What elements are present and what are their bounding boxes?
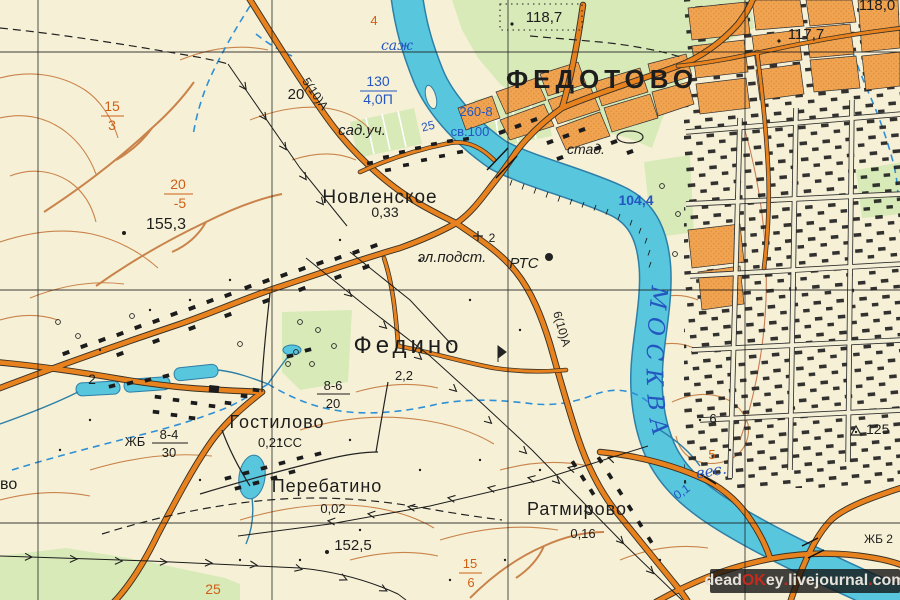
label-fedotovo: ФЕДОТОВО [506,64,698,94]
label-pop-fedino: 2,2 [395,368,413,383]
label-fedino: Федино [353,332,462,359]
label-f156-num: 15 [463,556,477,571]
label-n20: 20 [288,86,305,103]
label-n6: 6 [709,411,716,426]
label-f86-den: 20 [326,396,340,411]
elev-dot-1187 [510,22,513,25]
label-km2: 2 [88,371,96,387]
label-elev-1525: 152,5 [334,537,372,554]
label-perebatino: Перебатино [272,476,383,496]
label-sad-uch: сад.уч. [338,122,386,139]
label-n5: 5 [708,447,715,462]
label-f84-den: 30 [162,445,176,460]
label-f86-num: 8-6 [324,378,343,393]
map-viewport: ФЕДОТОВО Новленское Федино Гостилово Пер… [0,0,900,600]
watermark-part: OK [742,572,766,590]
label-f153-den: 3 [108,117,116,133]
label-bridge-cap: св.100 [451,124,490,139]
watermark: deadOKey.livejournal.com [710,569,900,593]
watermark-part: ey [766,572,784,590]
label-bridge-dims: 260-8 [459,104,492,119]
elev-dot-1177 [777,39,780,42]
watermark-part: com [873,572,900,590]
label-f205-num: 20 [170,176,186,192]
label-zhb2: ЖБ 2 [864,532,893,546]
label-n25: 25 [205,581,221,597]
label-elev-1177: 117,7 [788,26,824,43]
triangulation-dot [855,431,857,433]
label-n4: 4 [370,13,377,28]
label-gostilovo: Гостилово [230,412,325,432]
elev-dot-1525 [325,550,329,554]
label-ratmirovo: Ратмирово [527,499,627,519]
label-elev-1187: 118,7 [526,9,562,26]
label-elev-1553: 155,3 [146,216,186,233]
label-zhb: ЖБ [125,434,146,449]
label-el-podst: эл.подст. [418,249,487,266]
label-stadium: стад. [567,141,605,157]
label-pop-gostilovo: 0,21СС [258,435,302,450]
label-edge-name: во [0,476,17,493]
label-f153-num: 15 [104,98,120,114]
label-width-num: 130 [366,73,390,89]
water-tower-symbol [545,253,553,261]
label-f156-den: 6 [467,575,474,590]
label-elev-125: 125 [866,421,890,437]
label-elev-1180: 118,0 [859,0,895,14]
watermark-part: livejournal [788,572,868,590]
watermark-part: dead [705,572,742,590]
label-f205-den: -5 [174,195,187,211]
label-sazh: саж [381,38,413,54]
label-water-level: 104,4 [618,192,653,208]
topo-map: ФЕДОТОВО Новленское Федино Гостилово Пер… [0,0,900,600]
label-n2-pole: 2 [489,231,496,245]
label-pop-perebatino: 0,02 [320,501,345,516]
elev-dot-1553 [122,231,126,235]
label-pop-ratmirovo: 0,16 [570,526,595,541]
label-width-den: 4,0П [363,91,393,107]
label-pop-novlenskoe: 0,33 [371,204,398,220]
label-f84-num: 8-4 [160,427,179,442]
label-rts: РТС [509,255,538,272]
